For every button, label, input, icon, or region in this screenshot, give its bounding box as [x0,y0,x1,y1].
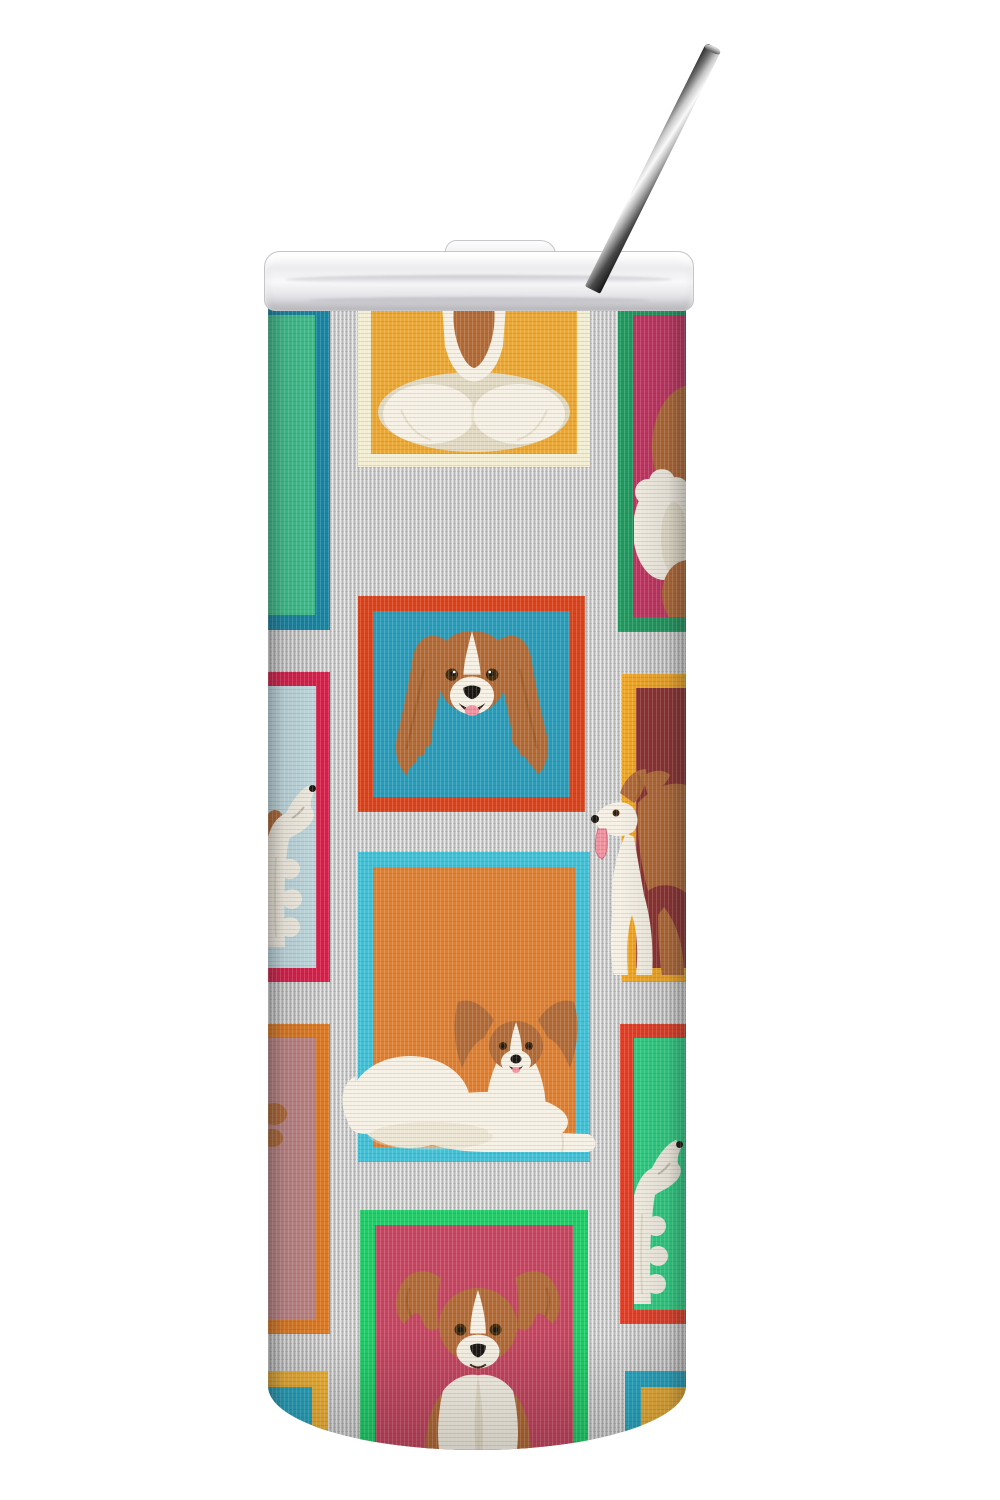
dog-partial-edge-illustration [634,372,686,617]
tumbler-body [268,292,686,1450]
dog-head-illustration [376,614,568,794]
frame-bottom-right-corner [625,1371,686,1450]
pattern-wrap [268,292,686,1450]
tumbler-lid [264,251,694,311]
dog-trotting-illustration [586,767,686,982]
frame-bottom-left-corner [268,1371,328,1450]
product-photo-scene [0,0,1000,1500]
dog-lying-down-illustration [336,994,630,1176]
dog-looking-up-illustration-2 [632,1132,686,1304]
frame-lower-left-mauve [268,1024,330,1334]
dog-looking-up-illustration [268,777,316,947]
dog-rear-view-illustration [371,292,577,454]
frame-top-left-green [268,300,330,630]
dog-front-view-illustration [380,1264,576,1450]
dog-paw-illustration [268,1100,294,1150]
